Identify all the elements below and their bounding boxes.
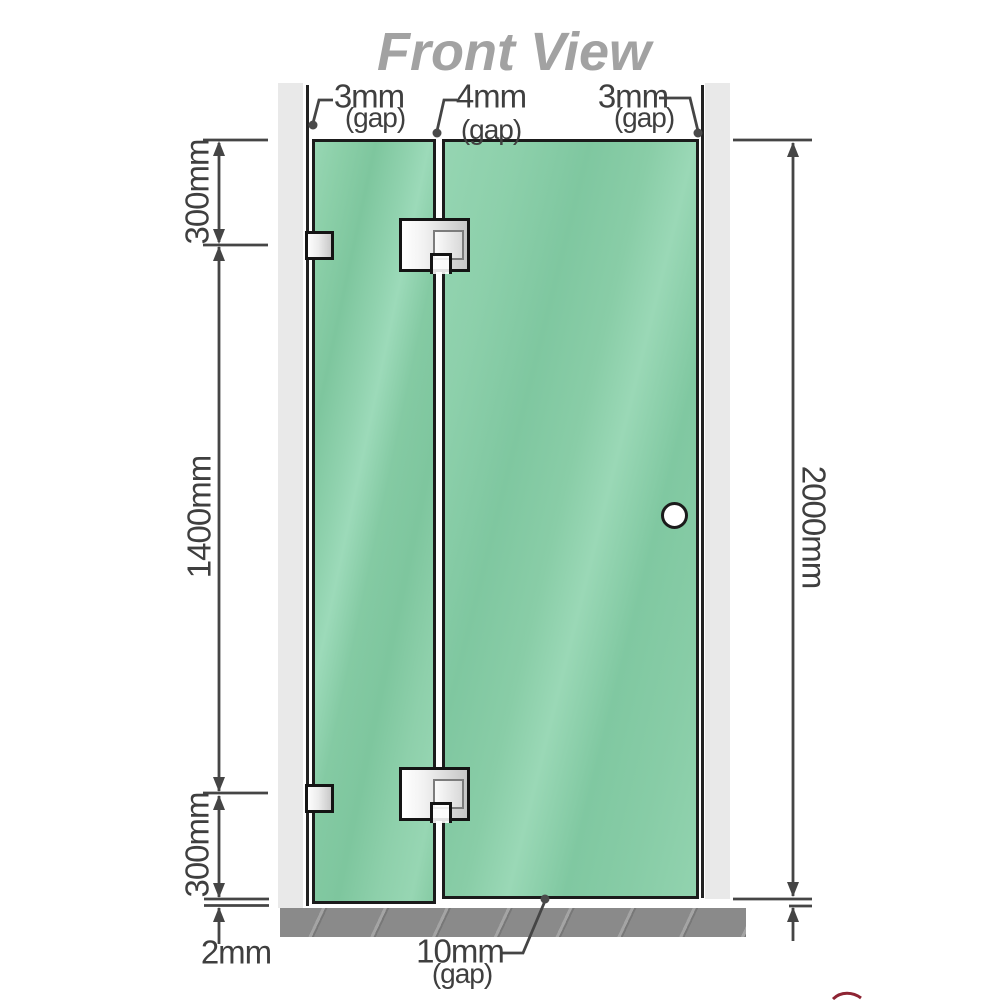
- gap-value-bottom-left: 2mm: [201, 936, 271, 969]
- dimension-left-bottom: 300mm: [181, 792, 214, 897]
- dimension-left-middle: 1400mm: [183, 456, 216, 578]
- gap-label-top-middle: (gap): [461, 116, 521, 144]
- glass-hinge-bottom-notch: [430, 802, 452, 823]
- left-wall: [278, 83, 303, 908]
- dimension-left-top: 300mm: [181, 139, 214, 244]
- door-glass-panel: [442, 139, 699, 899]
- gap-value-top-middle: 4mm: [456, 80, 526, 113]
- floor: [280, 908, 746, 937]
- gap-label-top-right: (gap): [614, 104, 674, 132]
- left-wall-face-line: [306, 85, 309, 906]
- wall-bracket-bottom: [305, 784, 334, 813]
- logo-fragment: [833, 993, 861, 999]
- front-view-diagram: Front View: [0, 0, 1000, 1000]
- gap-label-top-left: (gap): [345, 104, 405, 132]
- wall-bracket-top: [305, 231, 334, 260]
- gap-label-bottom-middle: (gap): [432, 960, 492, 988]
- glass-hinge-top-notch: [430, 253, 452, 274]
- right-wall-face-line: [701, 85, 704, 898]
- door-handle: [661, 502, 688, 529]
- diagram-title: Front View: [377, 21, 651, 83]
- dimension-right-overall: 2000mm: [798, 466, 831, 588]
- right-wall: [705, 83, 730, 899]
